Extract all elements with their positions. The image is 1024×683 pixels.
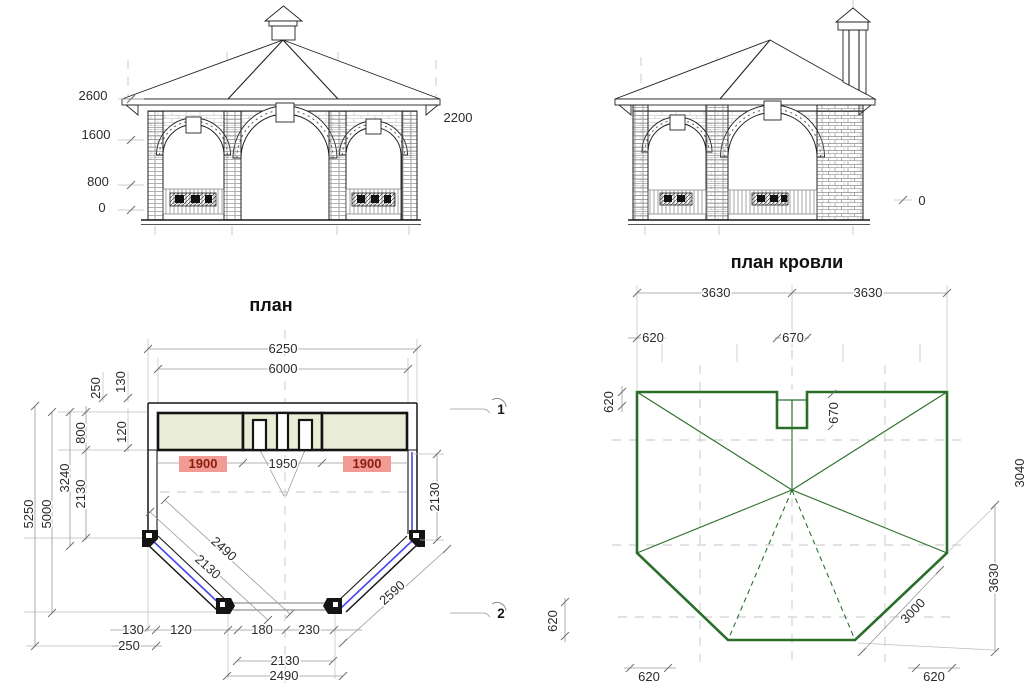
dim-b180: 180 — [251, 622, 273, 637]
side-brick-wall — [817, 105, 863, 220]
dim-3000-hip: 3000 — [897, 595, 928, 626]
bench-left — [158, 413, 243, 450]
dim-3630-right: 3630 — [854, 285, 883, 300]
dim-620-br: 620 — [923, 669, 945, 683]
side-pier — [633, 105, 648, 220]
axis-marker-2: 2 — [497, 606, 505, 621]
dim-partial-right-edge: 3040 — [1012, 459, 1024, 488]
dim-1950: 1950 — [269, 456, 298, 471]
front-roof — [122, 40, 440, 99]
dim-620-bl: 620 — [638, 669, 660, 683]
floor-plan-title: план — [249, 295, 292, 315]
dim-120: 120 — [114, 421, 129, 443]
roof-plan: план кровли 3630 3630 620 670 620 670 62… — [545, 252, 1024, 683]
dim-670-chimney-w: 670 — [782, 330, 804, 345]
front-pier — [148, 111, 163, 220]
floor-plan: план 6250 6000 — [21, 295, 506, 683]
front-arch-middle — [241, 114, 329, 220]
roof-plan-title: план кровли — [731, 252, 844, 272]
dim-b120: 120 — [170, 622, 192, 637]
front-pier — [224, 111, 241, 220]
niche — [253, 420, 266, 450]
front-level-0: 0 — [98, 200, 105, 215]
dim-b230: 230 — [298, 622, 320, 637]
dim-620-edge-top: 620 — [601, 391, 616, 413]
dim-250: 250 — [88, 377, 103, 399]
dim-800: 800 — [73, 422, 88, 444]
dim-b2490: 2490 — [270, 668, 299, 683]
dim-b2130: 2130 — [271, 653, 300, 668]
dim-5000: 5000 — [39, 500, 54, 529]
dim-1900-right: 1900 — [353, 456, 382, 471]
dim-3630-right-span: 3630 — [986, 564, 1001, 593]
dim-right-2130: 2130 — [427, 483, 442, 512]
axis-marker-1: 1 — [497, 402, 505, 417]
dim-670-chimney-h: 670 — [826, 402, 841, 424]
blueprint-canvas: 2600 1600 800 0 2200 0 план — [0, 0, 1024, 683]
side-level-0: 0 — [918, 193, 925, 208]
dim-130: 130 — [113, 371, 128, 393]
dim-6000: 6000 — [269, 361, 298, 376]
gazebo-drawing: 2600 1600 800 0 2200 0 план — [0, 0, 1024, 683]
bench-right — [322, 413, 407, 450]
cupola-icon — [265, 6, 302, 40]
dim-3630-left: 3630 — [702, 285, 731, 300]
front-level-1600: 1600 — [82, 127, 111, 142]
side-pier — [706, 105, 728, 220]
dim-2590-diag: 2590 — [376, 577, 408, 607]
front-level-2600: 2600 — [79, 88, 108, 103]
dim-b250: 250 — [118, 638, 140, 653]
dim-5250: 5250 — [21, 500, 36, 529]
side-elevation: 0 — [615, 0, 926, 238]
niche — [299, 420, 312, 450]
front-level-800: 800 — [87, 174, 109, 189]
dim-left-2130: 2130 — [73, 480, 88, 509]
front-elevation: 2600 1600 800 0 2200 — [79, 6, 473, 238]
front-pier — [329, 111, 346, 220]
dim-6250: 6250 — [269, 341, 298, 356]
front-right-dim: 2200 — [444, 110, 473, 125]
front-pier — [402, 111, 417, 220]
niche-center — [277, 413, 288, 450]
dim-620-offset: 620 — [642, 330, 664, 345]
dim-1900-left: 1900 — [189, 456, 218, 471]
dim-3240: 3240 — [57, 464, 72, 493]
dim-620-edge-bottom: 620 — [545, 610, 560, 632]
dim-b130: 130 — [122, 622, 144, 637]
